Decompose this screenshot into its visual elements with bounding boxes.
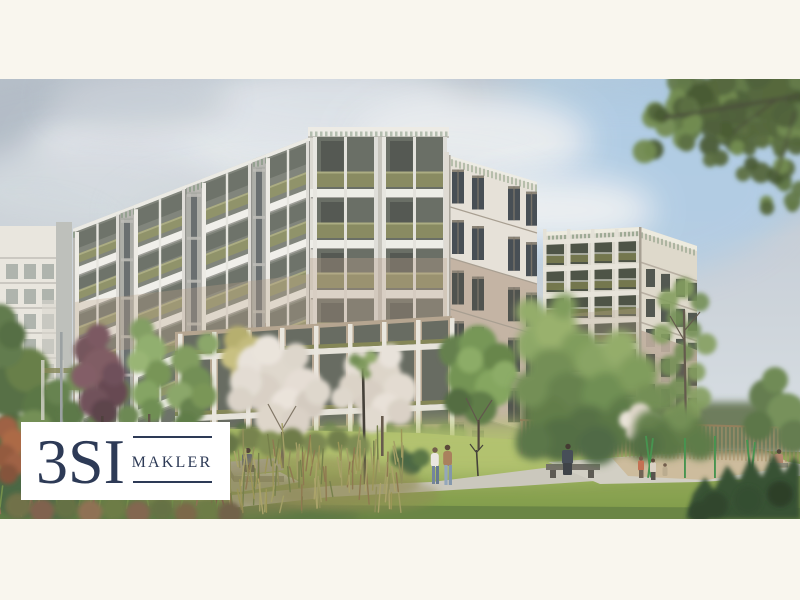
svg-text:3SI: 3SI [36, 426, 125, 497]
svg-text:MAKLER: MAKLER [132, 454, 213, 471]
